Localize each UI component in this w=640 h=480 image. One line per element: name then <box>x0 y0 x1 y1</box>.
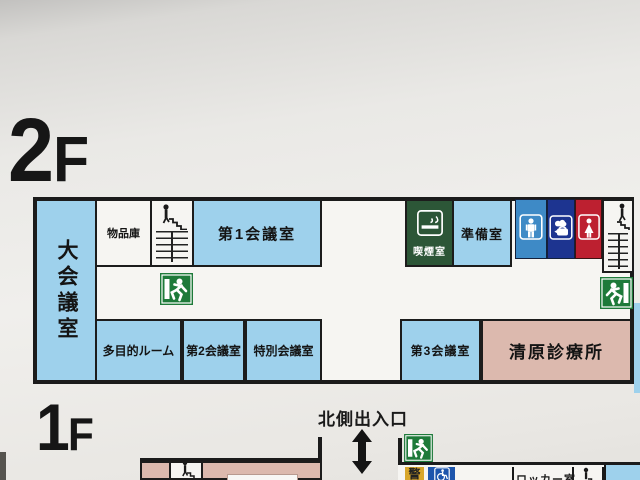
floor-1-room-divider <box>512 467 514 480</box>
floor-1-letter: F <box>68 411 91 457</box>
stairs-person-icon <box>607 202 633 235</box>
wheelchair-icon <box>428 467 455 480</box>
room-meeting-2-label: 第2会議室 <box>186 342 241 359</box>
floor-1-wall-stub <box>318 437 322 461</box>
room-prep: 準備室 <box>452 199 512 267</box>
cut-off-room-sliver <box>634 303 640 393</box>
smoking-icon <box>416 209 444 240</box>
floor-1-title: 1 F <box>36 394 91 460</box>
locker-room-label: ロッカー室 <box>516 471 576 480</box>
room-meeting-3: 第3会議室 <box>400 319 481 382</box>
room-storage-label: 物品庫 <box>107 225 140 241</box>
exit-sign-icon <box>160 273 193 305</box>
room-multipurpose: 多目的ルーム <box>95 319 182 382</box>
floor-1-number: 1 <box>36 394 67 460</box>
stairs-person-icon <box>176 461 196 480</box>
floor-2-number: 2 <box>8 106 51 196</box>
photo-edge-artifact <box>0 452 6 480</box>
floor-1-wall-stub <box>398 438 402 465</box>
kettle-icon <box>549 213 573 246</box>
stairs-rail <box>171 231 173 262</box>
woman-icon <box>578 212 600 247</box>
stairwell-top-left <box>150 199 194 267</box>
toilet-women-sign <box>575 199 602 259</box>
room-special-meeting-label: 特別会議室 <box>253 342 313 359</box>
floor-1-stairwell <box>169 461 203 480</box>
room-special-meeting: 特別会議室 <box>245 319 322 382</box>
exit-sign-icon <box>600 277 633 309</box>
stairwell-top-right <box>602 199 634 273</box>
room-meeting-1-label: 第1会議室 <box>218 223 296 244</box>
room-meeting-1: 第1会議室 <box>192 199 322 267</box>
toilet-men-sign <box>515 199 547 259</box>
room-storage: 物品庫 <box>95 199 152 267</box>
room-smoking: 喫煙室 <box>405 199 454 267</box>
man-icon <box>519 212 543 247</box>
room-large-meeting-label: 大会議室 <box>51 239 81 343</box>
north-entrance-label: 北側出入口 <box>318 405 408 430</box>
room-meeting-3-label: 第3会議室 <box>411 342 471 359</box>
floor-2-title: 2 F <box>8 106 86 196</box>
room-large-meeting: 大会議室 <box>35 199 97 382</box>
stairs-person-icon <box>578 467 600 480</box>
exit-sign-icon <box>404 434 433 462</box>
floor-1-room-label-box <box>227 474 298 480</box>
security-sign-icon: 警 <box>405 467 424 480</box>
floor-2-letter: F <box>53 127 86 191</box>
room-clinic-label: 清原診療所 <box>509 338 604 363</box>
floor-1-blue-room <box>604 465 640 480</box>
kitchenette-sign <box>547 199 575 259</box>
security-sign-glyph: 警 <box>408 467 420 480</box>
room-multipurpose-label: 多目的ルーム <box>103 342 175 359</box>
room-prep-label: 準備室 <box>461 224 503 243</box>
floor-guide-sign: 2 F 大会議室 物品庫 第1会議室 <box>0 0 640 480</box>
entrance-arrow-icon <box>351 429 373 479</box>
floor-1-room-divider <box>572 467 574 480</box>
room-smoking-label: 喫煙室 <box>413 243 446 258</box>
room-meeting-2: 第2会議室 <box>182 319 245 382</box>
stairs-rail <box>618 233 620 269</box>
room-clinic: 清原診療所 <box>481 319 632 382</box>
floor-1-room <box>140 461 171 480</box>
